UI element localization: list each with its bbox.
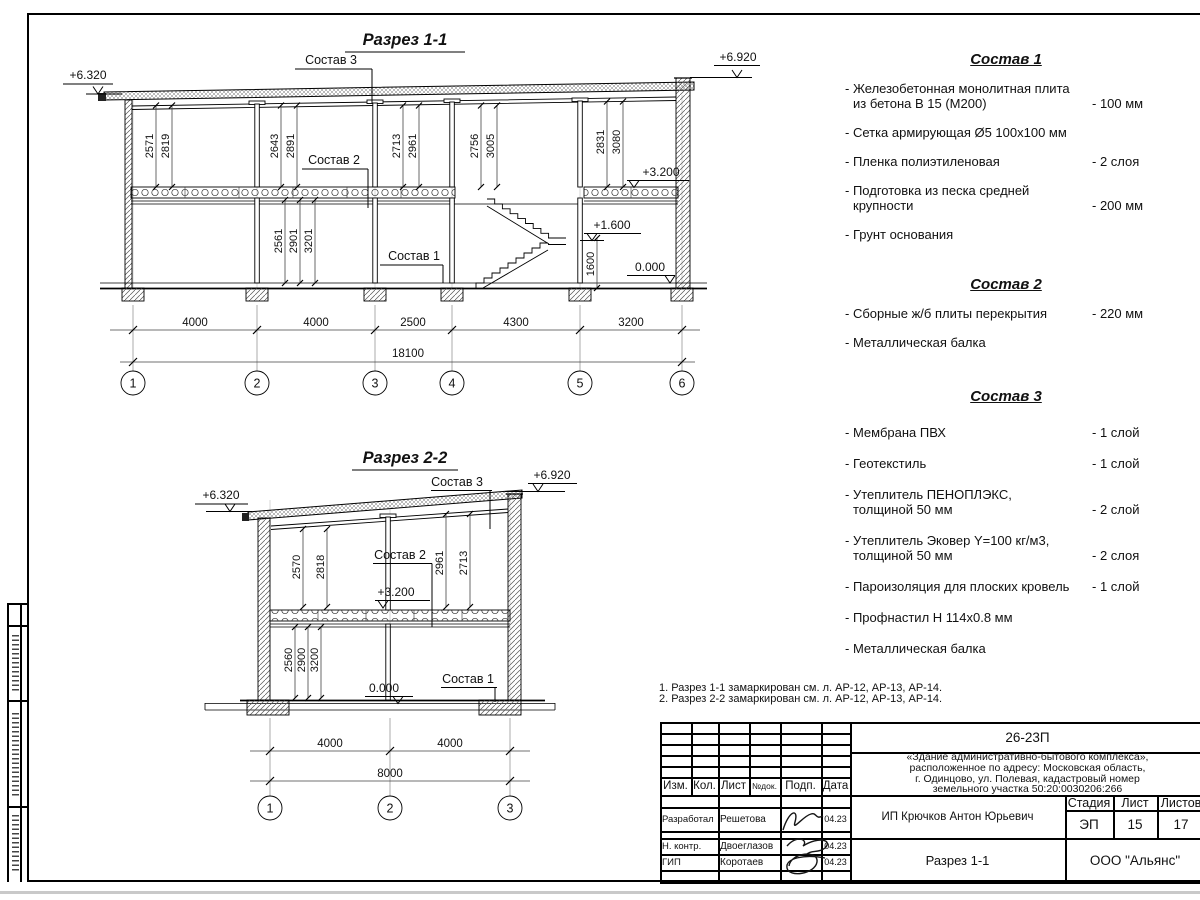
s11-sostav3-label: Состав 3 bbox=[305, 53, 357, 67]
s22-dim: 2900 bbox=[296, 648, 308, 672]
s11-axis-bubble: 4 bbox=[449, 377, 456, 391]
s22-dim: 2818 bbox=[315, 555, 327, 579]
composition-2-title: Состав 2 bbox=[845, 277, 1167, 292]
tb-header-izm: Изм. bbox=[660, 777, 691, 795]
s11-dim: 2961 bbox=[407, 134, 419, 158]
tb-sheet-label: Лист bbox=[1113, 795, 1157, 810]
s22-sostav2-label: Состав 2 bbox=[374, 548, 426, 562]
tb-header-podp: Подп. bbox=[780, 777, 821, 795]
composition-item: - Железобетонная монолитная плита из бет… bbox=[845, 81, 1167, 111]
tb-stage-value: ЭП bbox=[1065, 810, 1113, 838]
s11-dim: 1600 bbox=[585, 252, 597, 276]
s11-elev-left: +6.320 bbox=[69, 68, 106, 82]
s11-span-dim: 4000 bbox=[182, 317, 208, 329]
frame-top bbox=[27, 13, 1200, 15]
s11-sostav2-label: Состав 2 bbox=[308, 153, 360, 167]
tb-client: ИП Крючков Антон Юрьевич bbox=[850, 795, 1065, 838]
drawing-sheet: Разрез 1-1 Состав 3 Состав 2 Состав 1 +6… bbox=[0, 0, 1200, 900]
composition-item: - Утеплитель Эковер Y=100 кг/м3, толщино… bbox=[845, 533, 1167, 563]
s11-dim: 2756 bbox=[469, 134, 481, 158]
composition-item: - Сборные ж/б плиты перекрытия - 220 мм bbox=[845, 306, 1167, 321]
composition-item: - Металлическая балка bbox=[845, 641, 1167, 656]
s11-total-dim: 18100 bbox=[392, 348, 424, 360]
side-stamp-vertical-text bbox=[12, 713, 19, 797]
side-stamp-vertical-text bbox=[12, 635, 19, 693]
section-2-2: Разрез 2-2 Состав 3 Состав 2 Состав 1 +6… bbox=[195, 449, 577, 820]
tb-stage-label: Стадия bbox=[1065, 795, 1113, 810]
s11-dim: 2643 bbox=[269, 134, 281, 158]
s11-axis-bubble: 5 bbox=[577, 377, 584, 391]
tb-project-name: «Здание административно-бытового комплек… bbox=[852, 752, 1200, 795]
tb-role: ГИП bbox=[662, 854, 718, 870]
section-1-1: Разрез 1-1 Состав 3 Состав 2 Состав 1 +6… bbox=[63, 31, 760, 395]
tb-doc-code: 26-23П bbox=[850, 722, 1200, 752]
title-block: Изм. Кол. Лист №док. Подп. Дата Разработ… bbox=[660, 722, 1200, 884]
s11-elev-floor: +3.200 bbox=[642, 165, 679, 179]
s11-axis-bubble: 3 bbox=[372, 377, 379, 391]
composition-item: - Профнастил Н 114х0.8 мм bbox=[845, 610, 1167, 625]
s22-dim: 2961 bbox=[434, 551, 446, 575]
notes: 1. Разрез 1-1 замаркирован см. л. АР-12,… bbox=[659, 683, 942, 704]
tb-drawing-title: Разрез 1-1 bbox=[850, 838, 1065, 882]
s22-axis-bubble: 2 bbox=[387, 802, 394, 816]
s22-sostav3-label: Состав 3 bbox=[431, 475, 483, 489]
tb-sheets-label: Листов bbox=[1157, 795, 1200, 810]
s22-total-dim: 8000 bbox=[377, 768, 403, 780]
s22-title: Разрез 2-2 bbox=[363, 449, 448, 467]
s11-span-dim: 3200 bbox=[618, 317, 644, 329]
s11-title: Разрез 1-1 bbox=[363, 31, 448, 49]
s22-dim: 2560 bbox=[283, 648, 295, 672]
s11-dim: 2561 bbox=[273, 229, 285, 253]
s11-dim: 2819 bbox=[160, 134, 172, 158]
tb-role: Разработал bbox=[662, 807, 718, 831]
s11-axis-bubble: 6 bbox=[679, 377, 686, 391]
s22-elev-floor: +3.200 bbox=[377, 585, 414, 599]
s22-span-dim: 4000 bbox=[437, 738, 463, 750]
composition-item: - Сетка армирующая Ø5 100х100 мм bbox=[845, 125, 1167, 140]
note-line: 1. Разрез 1-1 замаркирован см. л. АР-12,… bbox=[659, 683, 942, 694]
s22-elev-right: +6.920 bbox=[533, 468, 570, 482]
tb-date: 04.23 bbox=[821, 854, 850, 870]
s22-span-dim: 4000 bbox=[317, 738, 343, 750]
composition-2: Состав 2 - Сборные ж/б плиты перекрытия … bbox=[845, 277, 1167, 364]
s22-sostav1-label: Состав 1 bbox=[442, 672, 494, 686]
s11-sostav1-label: Состав 1 bbox=[388, 249, 440, 263]
s22-elev-left: +6.320 bbox=[202, 488, 239, 502]
s11-dim: 2831 bbox=[595, 130, 607, 154]
side-stamp-vertical-text bbox=[12, 815, 19, 873]
s11-dim: 2713 bbox=[391, 134, 403, 158]
composition-item: - Грунт основания bbox=[845, 227, 1167, 242]
s11-axis-bubble: 1 bbox=[130, 377, 137, 391]
s11-elev-right: +6.920 bbox=[719, 50, 756, 64]
s11-span-dim: 2500 bbox=[400, 317, 426, 329]
frame-left bbox=[27, 13, 29, 882]
tb-sheet-value: 15 bbox=[1113, 810, 1157, 838]
composition-item: - Геотекстиль - 1 слой bbox=[845, 456, 1167, 471]
s22-axis-bubble: 1 bbox=[267, 802, 274, 816]
s11-dim: 3080 bbox=[611, 130, 623, 154]
note-line: 2. Разрез 2-2 замаркирован см. л. АР-12,… bbox=[659, 694, 942, 705]
s11-span-dim: 4300 bbox=[503, 317, 529, 329]
s22-axis-bubble: 3 bbox=[507, 802, 514, 816]
tb-name: Двоеглазов bbox=[720, 838, 780, 854]
tb-date: 04.23 bbox=[821, 838, 850, 854]
tb-name: Решетова bbox=[720, 807, 780, 831]
s22-dim: 2570 bbox=[291, 555, 303, 579]
scan-edge bbox=[0, 891, 1200, 894]
tb-sheets-value: 17 bbox=[1157, 810, 1200, 838]
side-stamp bbox=[7, 603, 27, 882]
s11-dim: 2571 bbox=[144, 134, 156, 158]
s22-dim: 2713 bbox=[458, 551, 470, 575]
composition-item: - Металлическая балка bbox=[845, 335, 1167, 350]
s11-dim: 3005 bbox=[485, 134, 497, 158]
tb-header-list: Лист bbox=[718, 777, 749, 795]
s11-elev-landing: +1.600 bbox=[593, 218, 630, 232]
composition-3-title: Состав 3 bbox=[845, 389, 1167, 404]
s11-dim: 3201 bbox=[303, 229, 315, 253]
s11-axis-bubble: 2 bbox=[254, 377, 261, 391]
composition-3: Состав 3 - Мембрана ПВХ - 1 слой - Геоте… bbox=[845, 389, 1167, 672]
s11-dim: 2901 bbox=[288, 229, 300, 253]
tb-header-data: Дата bbox=[821, 777, 850, 795]
tb-date: 04.23 bbox=[821, 807, 850, 831]
s11-span-dim: 4000 bbox=[303, 317, 329, 329]
tb-header-kol: Кол. bbox=[691, 777, 718, 795]
s22-elev-zero: 0.000 bbox=[369, 681, 399, 695]
frame-bottom bbox=[27, 880, 1200, 882]
composition-1-title: Состав 1 bbox=[845, 52, 1167, 67]
s22-dim: 3200 bbox=[309, 648, 321, 672]
tb-company: ООО "Альянс" bbox=[1065, 838, 1200, 882]
tb-role: Н. контр. bbox=[662, 838, 718, 854]
composition-item: - Мембрана ПВХ - 1 слой bbox=[845, 425, 1167, 440]
composition-item: - Утеплитель ПЕНОПЛЭКС, толщиной 50 мм -… bbox=[845, 487, 1167, 517]
tb-name: Коротаев bbox=[720, 854, 780, 870]
tb-header-ndok: №док. bbox=[749, 777, 780, 795]
s11-dim: 2891 bbox=[285, 134, 297, 158]
composition-item: - Пленка полиэтиленовая - 2 слоя bbox=[845, 154, 1167, 169]
s11-elev-zero: 0.000 bbox=[635, 260, 665, 274]
composition-item: - Подготовка из песка средней крупности … bbox=[845, 183, 1167, 213]
composition-item: - Пароизоляция для плоских кровель - 1 с… bbox=[845, 579, 1167, 594]
composition-1: Состав 1 - Железобетонная монолитная пли… bbox=[845, 52, 1167, 256]
